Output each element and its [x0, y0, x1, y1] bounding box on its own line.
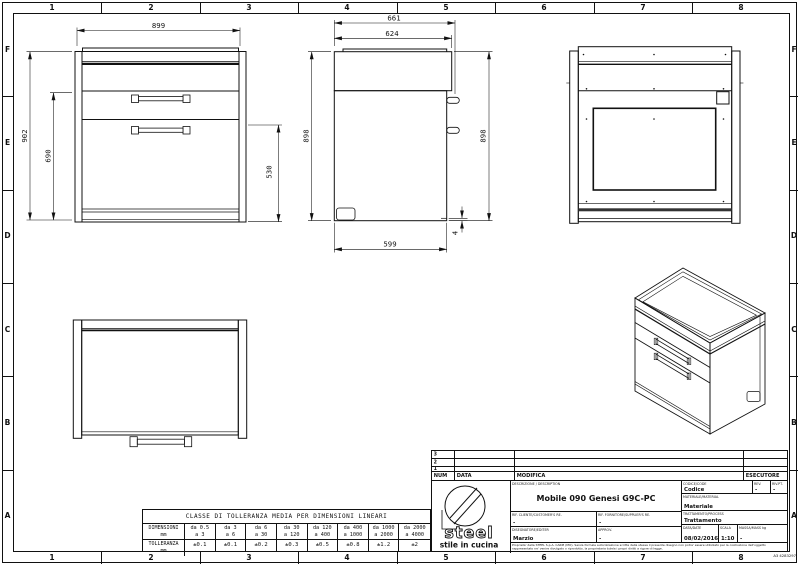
grid-tick [790, 470, 798, 471]
col-label: 8 [731, 3, 751, 12]
tol-row-label: TOLLERANZAmm [143, 540, 185, 556]
col-label: 7 [633, 553, 653, 562]
rev-cell: REV. - [752, 481, 770, 493]
tolerance-value: ±0.5 [308, 540, 339, 551]
dim-range: da 1000a 2000 [369, 524, 400, 540]
logo-brand: steel [444, 523, 493, 542]
row-label: D [790, 231, 798, 241]
legal-disclaimer: Proprieta' della STEEL S.p.A. CARPI (MO)… [511, 542, 787, 553]
col-label: 5 [436, 553, 456, 562]
code-cell: CODICE/CODE Codice [682, 481, 752, 493]
col-label: 5 [436, 3, 456, 12]
row-label: C [790, 325, 798, 335]
grid-tick [790, 190, 798, 191]
title-block: 3 2 1 NUM DATA MODIFICA ESECUTORE steel [431, 450, 788, 552]
revision-row: 2 [432, 459, 787, 467]
tolerance-value: ±2 [399, 540, 430, 551]
logo-tagline: stile in cucina [440, 541, 499, 550]
process-cell: TRATTAMENTO/PROCESS Trattamento [682, 511, 787, 525]
col-label: 1 [42, 553, 62, 562]
dim-range: da 400a 1000 [338, 524, 369, 540]
grid-tick [790, 96, 798, 97]
grid-tick [594, 2, 595, 13]
dim-range: da 2000a 4000 [399, 524, 430, 540]
grid-tick [790, 283, 798, 284]
dim-range: da 30a 120 [277, 524, 308, 540]
col-label: 6 [534, 3, 554, 12]
tolerance-table-title: CLASSE DI TOLLERANZA MEDIA PER DIMENSION… [143, 510, 430, 524]
doc-reference: A3 4283297 [761, 554, 796, 558]
grid-tick [2, 376, 13, 377]
revision-header-row: NUM DATA MODIFICA ESECUTORE [432, 472, 787, 481]
dim-range: da 120a 400 [308, 524, 339, 540]
tolerance-value: ±0.1 [216, 540, 247, 551]
steel-logo: steel stile in cucina [432, 481, 511, 553]
row-label: D [2, 231, 13, 241]
grid-tick [2, 283, 13, 284]
drafter-cell: DISEGNATORE/EDITER Marzio [511, 527, 596, 542]
col-label: 1 [42, 3, 62, 12]
row-label: C [2, 325, 13, 335]
row-label: B [790, 418, 798, 428]
logo-circle-icon [445, 486, 485, 526]
part-description: Mobile 090 Genesi G9C-PC [511, 494, 681, 503]
grid-tick [101, 2, 102, 13]
tolerance-value: ±0.8 [338, 540, 369, 551]
grid-tick [2, 470, 13, 471]
dim-range: da 6a 30 [246, 524, 277, 540]
row-label: F [2, 45, 13, 55]
dim-range: da 0.5a 3 [185, 524, 216, 540]
row-label: F [790, 45, 798, 55]
dim-row-label: DIMENSIONImm [143, 524, 185, 540]
revision-row: 3 [432, 451, 787, 459]
row-label: B [2, 418, 13, 428]
grid-tick [790, 376, 798, 377]
tolerance-value: ±0.3 [277, 540, 308, 551]
grid-tick [101, 552, 102, 564]
customer-ref-cell: RIF. CLIENTE/CUSTOMER'S RE. - [511, 512, 596, 526]
grid-tick [298, 2, 299, 13]
material-cell: MATERIALE/MATERIAL Materiale [682, 494, 787, 511]
row-label: A [2, 511, 13, 521]
scale-cell: SCALA 1:10 [718, 525, 737, 542]
grid-tick [397, 2, 398, 13]
grid-tick [2, 96, 13, 97]
grid-tick [200, 2, 201, 13]
col-label: 3 [239, 3, 259, 12]
grid-tick [692, 2, 693, 13]
col-label: 8 [731, 553, 751, 562]
tolerance-value: ±1.2 [369, 540, 400, 551]
col-label: 4 [337, 3, 357, 12]
grid-tick [2, 190, 13, 191]
supplier-ref-cell: RIF. FORNITORE/SUPPLIER'S RE. - [596, 512, 681, 526]
col-label: 6 [534, 553, 554, 562]
mass-cell: MASSA/MASS kg - [737, 525, 787, 542]
row-label: A [790, 511, 798, 521]
col-label: 2 [141, 3, 161, 12]
revpt-cell: RIV.PT. - [770, 481, 787, 493]
row-label: E [2, 138, 13, 148]
drawing-sheet: 1 2 3 4 5 6 7 8 1 2 3 4 5 6 7 8 F E D C … [0, 0, 800, 566]
tolerance-value: ±0.1 [185, 540, 216, 551]
grid-tick [495, 2, 496, 13]
grid-tick [692, 552, 693, 564]
col-label: 7 [633, 3, 653, 12]
approval-cell: APPROV. - [596, 527, 681, 542]
grid-tick [495, 552, 496, 564]
grid-tick [594, 552, 595, 564]
description-cell: DESCRIZIONE / DESCRIPTION Mobile 090 Gen… [511, 481, 681, 512]
row-label: E [790, 138, 798, 148]
date-cell: DATA/DATE 08/02/2016 [682, 525, 718, 542]
dim-range: da 3a 6 [216, 524, 247, 540]
tolerance-value: ±0.2 [246, 540, 277, 551]
tolerance-table: CLASSE DI TOLLERANZA MEDIA PER DIMENSION… [142, 509, 431, 552]
